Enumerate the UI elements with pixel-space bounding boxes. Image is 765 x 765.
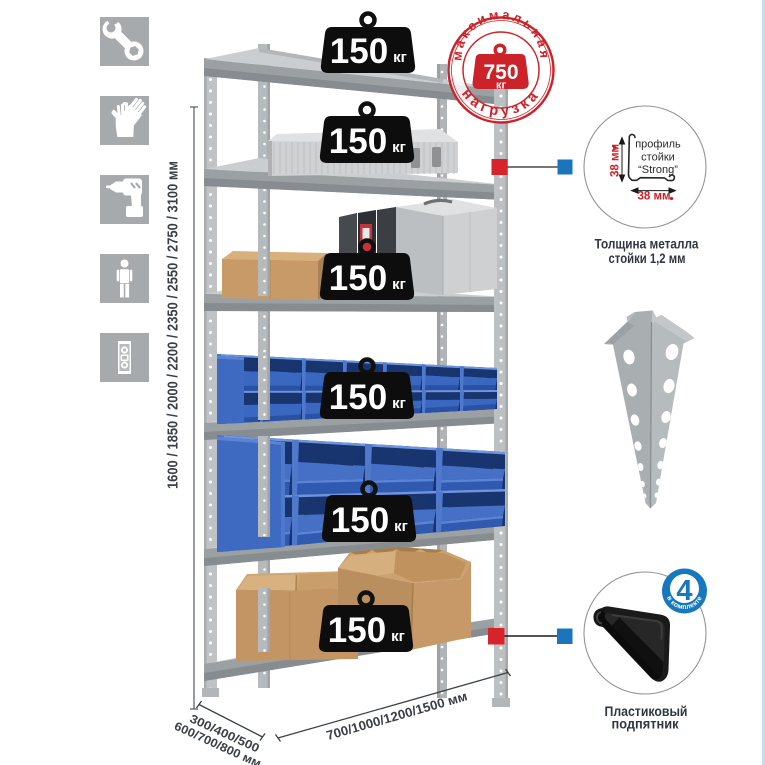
svg-text:профиль: профиль xyxy=(635,139,681,151)
svg-text:стойки 1,2 мм: стойки 1,2 мм xyxy=(609,250,686,266)
svg-text:1600 / 1850 / 2000 / 2200 / 23: 1600 / 1850 / 2000 / 2200 / 2350 / 2550 … xyxy=(165,161,182,489)
svg-text:150: 150 xyxy=(331,501,389,540)
svg-text:кг: кг xyxy=(392,276,406,293)
svg-text:кг: кг xyxy=(394,518,408,535)
svg-text:кг: кг xyxy=(496,80,507,92)
svg-text:кг: кг xyxy=(391,628,405,645)
svg-text:“Strong”: “Strong” xyxy=(638,164,678,176)
svg-text:38 мм: 38 мм xyxy=(637,191,670,203)
svg-text:150: 150 xyxy=(328,611,386,650)
svg-text:150: 150 xyxy=(329,122,387,161)
svg-text:кг: кг xyxy=(392,395,406,412)
svg-text:кг: кг xyxy=(392,139,406,156)
svg-text:38 мм: 38 мм xyxy=(610,144,622,177)
svg-text:150: 150 xyxy=(330,32,388,71)
svg-text:стойки: стойки xyxy=(641,152,675,164)
svg-text:150: 150 xyxy=(329,378,387,417)
svg-text:кг: кг xyxy=(393,49,407,66)
svg-text:150: 150 xyxy=(329,259,387,298)
svg-text:подпятник: подпятник xyxy=(612,716,680,732)
